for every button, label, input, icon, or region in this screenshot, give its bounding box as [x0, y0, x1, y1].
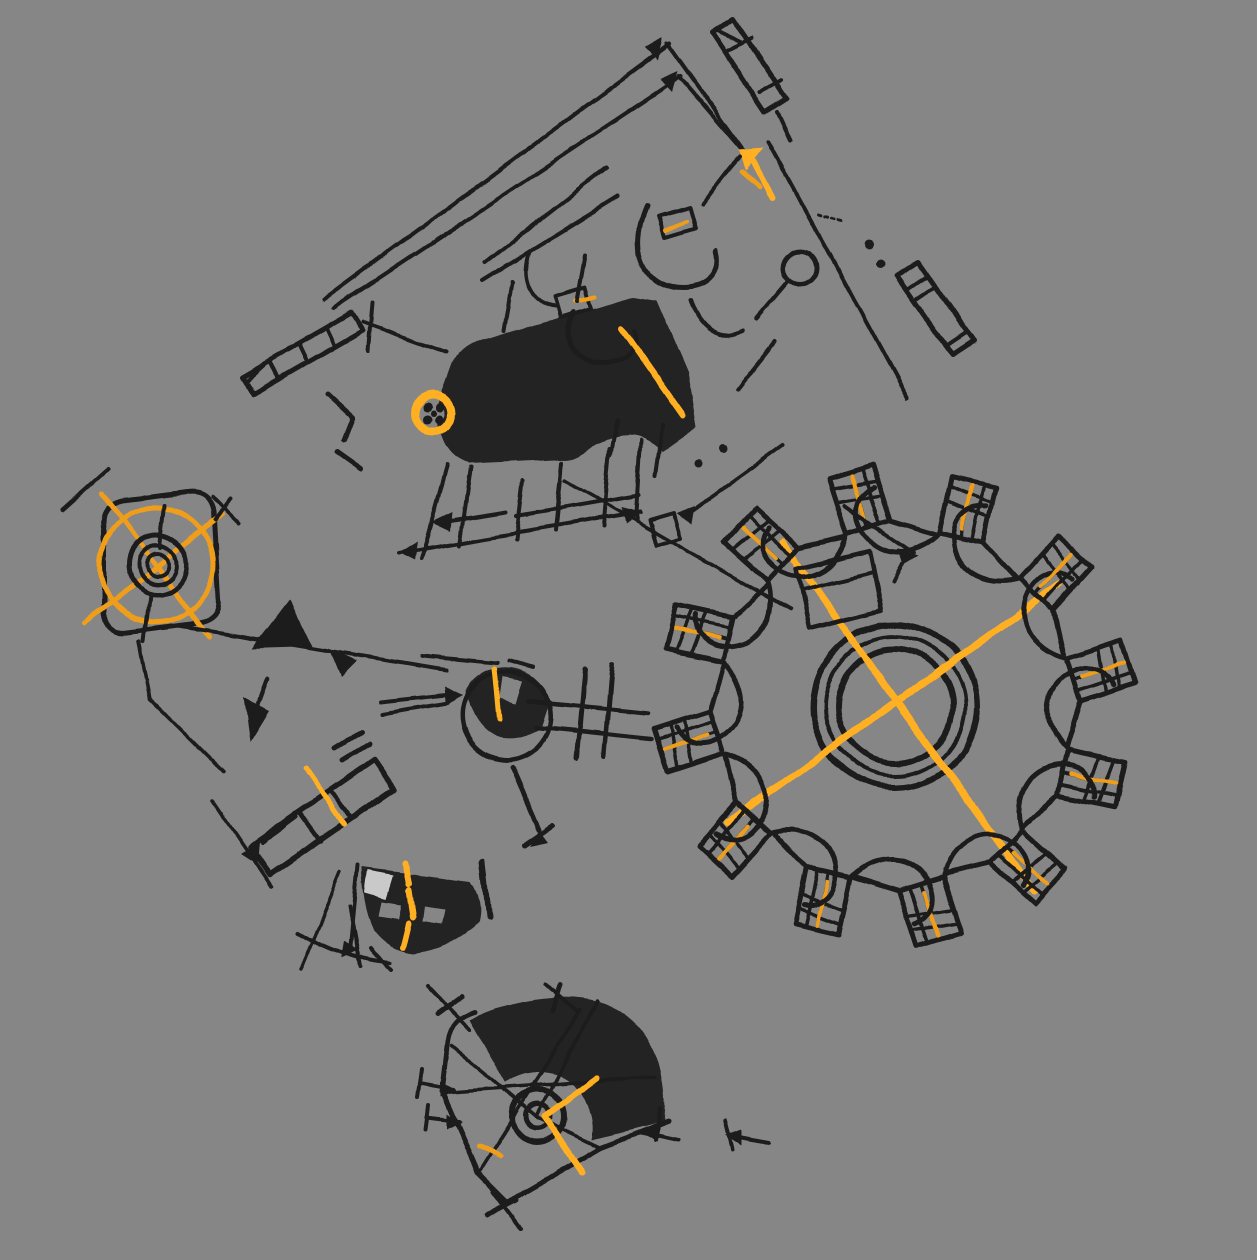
tooth-insert: [659, 207, 695, 237]
edge-dot: [876, 259, 885, 268]
keyway-bar-line: [907, 276, 928, 290]
dashed-centerline: [409, 890, 413, 916]
insert-gap: [379, 901, 401, 918]
insert-centerline: [666, 221, 686, 230]
tooth-back-edge: [766, 833, 814, 869]
rail-line: [536, 727, 652, 739]
ext-line: [62, 468, 109, 510]
tooth-back-edge: [1022, 787, 1058, 835]
jaw-line: [334, 732, 360, 748]
dim-line-long: [334, 77, 681, 308]
section-bar-tick: [327, 329, 335, 346]
tooth-hook-curve: [640, 206, 718, 287]
datum-lobe: [435, 403, 444, 412]
teeth-ring-1: [989, 655, 1167, 861]
tooth-arc: [526, 252, 556, 306]
bent-leader: [337, 452, 361, 469]
tooth-insert-detail: [297, 862, 488, 971]
datum-center: [430, 410, 436, 416]
bar-division: [300, 812, 321, 841]
section-cut-curve: [702, 157, 739, 204]
dim-line: [690, 445, 783, 512]
hatch-dashes: [818, 214, 843, 221]
ext-line: [363, 322, 446, 352]
insert-gap: [422, 907, 444, 924]
ext-line: [368, 301, 372, 352]
tooth-back-edge: [1064, 702, 1082, 749]
link-line: [151, 700, 224, 772]
edge-line: [482, 862, 488, 918]
frame-edge: [477, 1172, 508, 1203]
top-line: [423, 656, 497, 663]
tooth-arc: [690, 300, 744, 335]
datum-lobe: [423, 403, 432, 412]
bar-outline: [250, 760, 394, 875]
keyway-bar-line: [914, 287, 935, 301]
sector-fill: [470, 998, 665, 1139]
cutter-front-view: [622, 433, 1167, 978]
bar-centerline: [305, 768, 344, 825]
gullet-curve: [1032, 655, 1117, 754]
ext-line: [577, 255, 585, 301]
drawing-canvas: [0, 0, 1257, 1260]
dim-line-long: [325, 44, 670, 299]
ink-layer: [62, 18, 1168, 1228]
cross-line: [737, 341, 775, 389]
bar-diagonal: [262, 817, 297, 843]
frame-edge: [508, 1147, 601, 1203]
dim-line-mid: [482, 197, 618, 281]
datum-lobe: [435, 415, 444, 424]
stub-line: [144, 594, 150, 641]
cad-svg: [0, 0, 1257, 1260]
tooth-back-edge: [733, 577, 769, 625]
gullet-curve: [846, 843, 945, 928]
arbor-block-line: [717, 30, 742, 42]
keyway-bar-line: [945, 332, 966, 346]
teeth-ring-4: [739, 800, 945, 978]
ext-line-long: [565, 480, 790, 610]
leader-line: [757, 281, 789, 319]
ext-line: [555, 463, 562, 531]
segment-section-view: [418, 984, 768, 1228]
teeth-ring-7: [622, 550, 800, 756]
keyway-bar-outline: [897, 262, 973, 355]
leader-line: [178, 626, 446, 670]
insert-bar-detail: [214, 732, 394, 887]
stub-line: [160, 506, 165, 548]
tooth-back-edge: [853, 875, 900, 893]
section-bar-tick: [271, 361, 279, 378]
ext-line: [504, 282, 512, 331]
frame-corner: [448, 1012, 476, 1042]
tooth-back-edge: [891, 519, 938, 537]
detail-box: [649, 512, 680, 545]
arrowhead: [440, 1081, 456, 1097]
section-bar-tick: [299, 345, 307, 362]
dashed-centerline: [405, 864, 409, 884]
section-cut-arrow: [738, 148, 763, 170]
ext-line: [576, 668, 584, 758]
leader-line: [382, 703, 447, 714]
dim-return-line: [679, 77, 751, 161]
stem-line: [512, 768, 539, 830]
link-line: [140, 641, 151, 700]
section-cut-line: [753, 162, 772, 198]
arrowhead-large: [252, 599, 313, 648]
tooth-back-edge: [976, 544, 1024, 580]
datum-lobe: [423, 415, 432, 424]
leader-line: [450, 512, 506, 521]
arrowhead: [676, 505, 695, 523]
bent-leader: [327, 394, 352, 440]
edge-dot: [719, 444, 727, 452]
edge-dot: [696, 459, 704, 467]
side-line: [300, 872, 340, 970]
edge-dot: [864, 241, 873, 250]
top-line: [509, 660, 533, 667]
bar-division: [330, 790, 351, 819]
gullet-curve: [674, 657, 759, 756]
tick: [893, 565, 902, 583]
dim-line: [742, 1138, 768, 1143]
ext-line: [636, 441, 641, 521]
leader-line: [380, 695, 445, 702]
tooth-back-edge: [708, 664, 726, 711]
gullet-curve: [844, 485, 943, 570]
jaw-line: [342, 744, 368, 760]
tooth-profile-detail: [380, 656, 652, 847]
adapter-plate-view: [62, 468, 446, 772]
ext-line: [459, 467, 470, 545]
flag-tail: [258, 679, 268, 706]
long-edge-line: [768, 142, 908, 398]
arbor-block-stub: [777, 112, 790, 140]
